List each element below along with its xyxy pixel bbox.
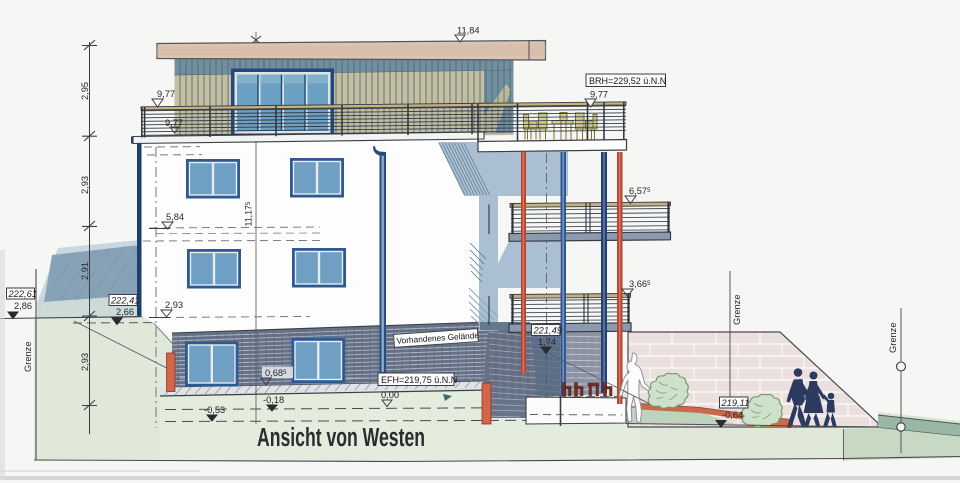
- svg-text:0,00: 0,00: [381, 390, 399, 400]
- svg-text:2,93: 2,93: [165, 300, 183, 310]
- svg-text:9,77: 9,77: [590, 90, 608, 100]
- svg-text:Ansicht von Westen: Ansicht von Westen: [257, 424, 425, 452]
- svg-text:1,74: 1,74: [538, 337, 556, 347]
- svg-text:2,93: 2,93: [80, 353, 90, 371]
- svg-text:219,11: 219,11: [721, 398, 750, 408]
- svg-text:-0,18: -0,18: [263, 395, 284, 405]
- svg-text:9,77: 9,77: [157, 89, 175, 99]
- svg-text:11,84: 11,84: [457, 26, 480, 36]
- svg-text:-0,53: -0,53: [204, 405, 225, 415]
- svg-text:BRH=229,52 ü.N.N: BRH=229,52 ü.N.N: [589, 76, 666, 86]
- svg-text:2,93: 2,93: [80, 176, 90, 194]
- svg-text:Grenze: Grenze: [23, 342, 33, 373]
- svg-text:2,66: 2,66: [116, 307, 134, 317]
- svg-text:-0,64: -0,64: [722, 410, 743, 420]
- svg-text:Grenze: Grenze: [732, 295, 742, 326]
- svg-text:222,41: 222,41: [110, 296, 139, 306]
- svg-text:2,91: 2,91: [80, 262, 90, 280]
- svg-text:222,61: 222,61: [8, 289, 37, 299]
- svg-text:221,49: 221,49: [533, 326, 562, 336]
- svg-text:2,95: 2,95: [80, 82, 90, 100]
- svg-text:Grenze: Grenze: [888, 323, 898, 354]
- svg-text:9,77: 9,77: [165, 118, 183, 128]
- svg-text:5,84: 5,84: [166, 212, 184, 222]
- svg-text:2,86: 2,86: [14, 301, 32, 311]
- svg-text:EFH=219,75 ü.N.N: EFH=219,75 ü.N.N: [381, 375, 457, 385]
